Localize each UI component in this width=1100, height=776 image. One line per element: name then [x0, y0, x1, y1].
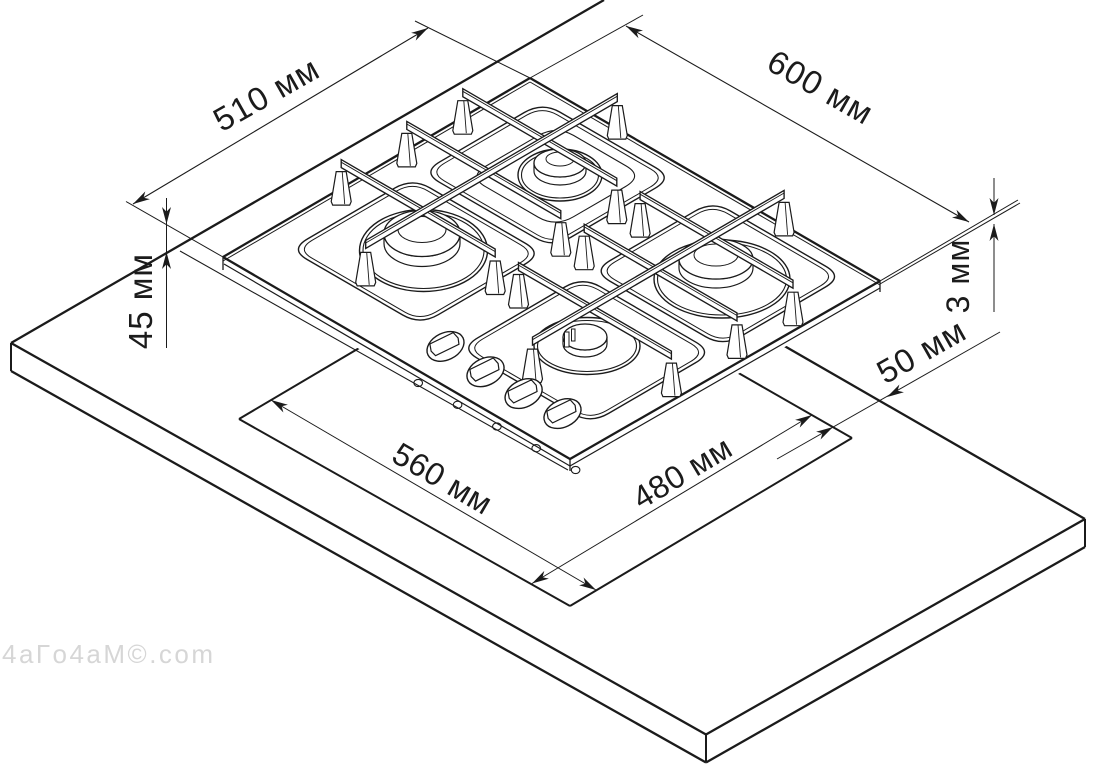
- svg-text:3 мм: 3 мм: [940, 239, 976, 314]
- svg-text:4aГo4aM©.com: 4aГo4aM©.com: [2, 639, 216, 669]
- svg-text:45 мм: 45 мм: [122, 253, 159, 349]
